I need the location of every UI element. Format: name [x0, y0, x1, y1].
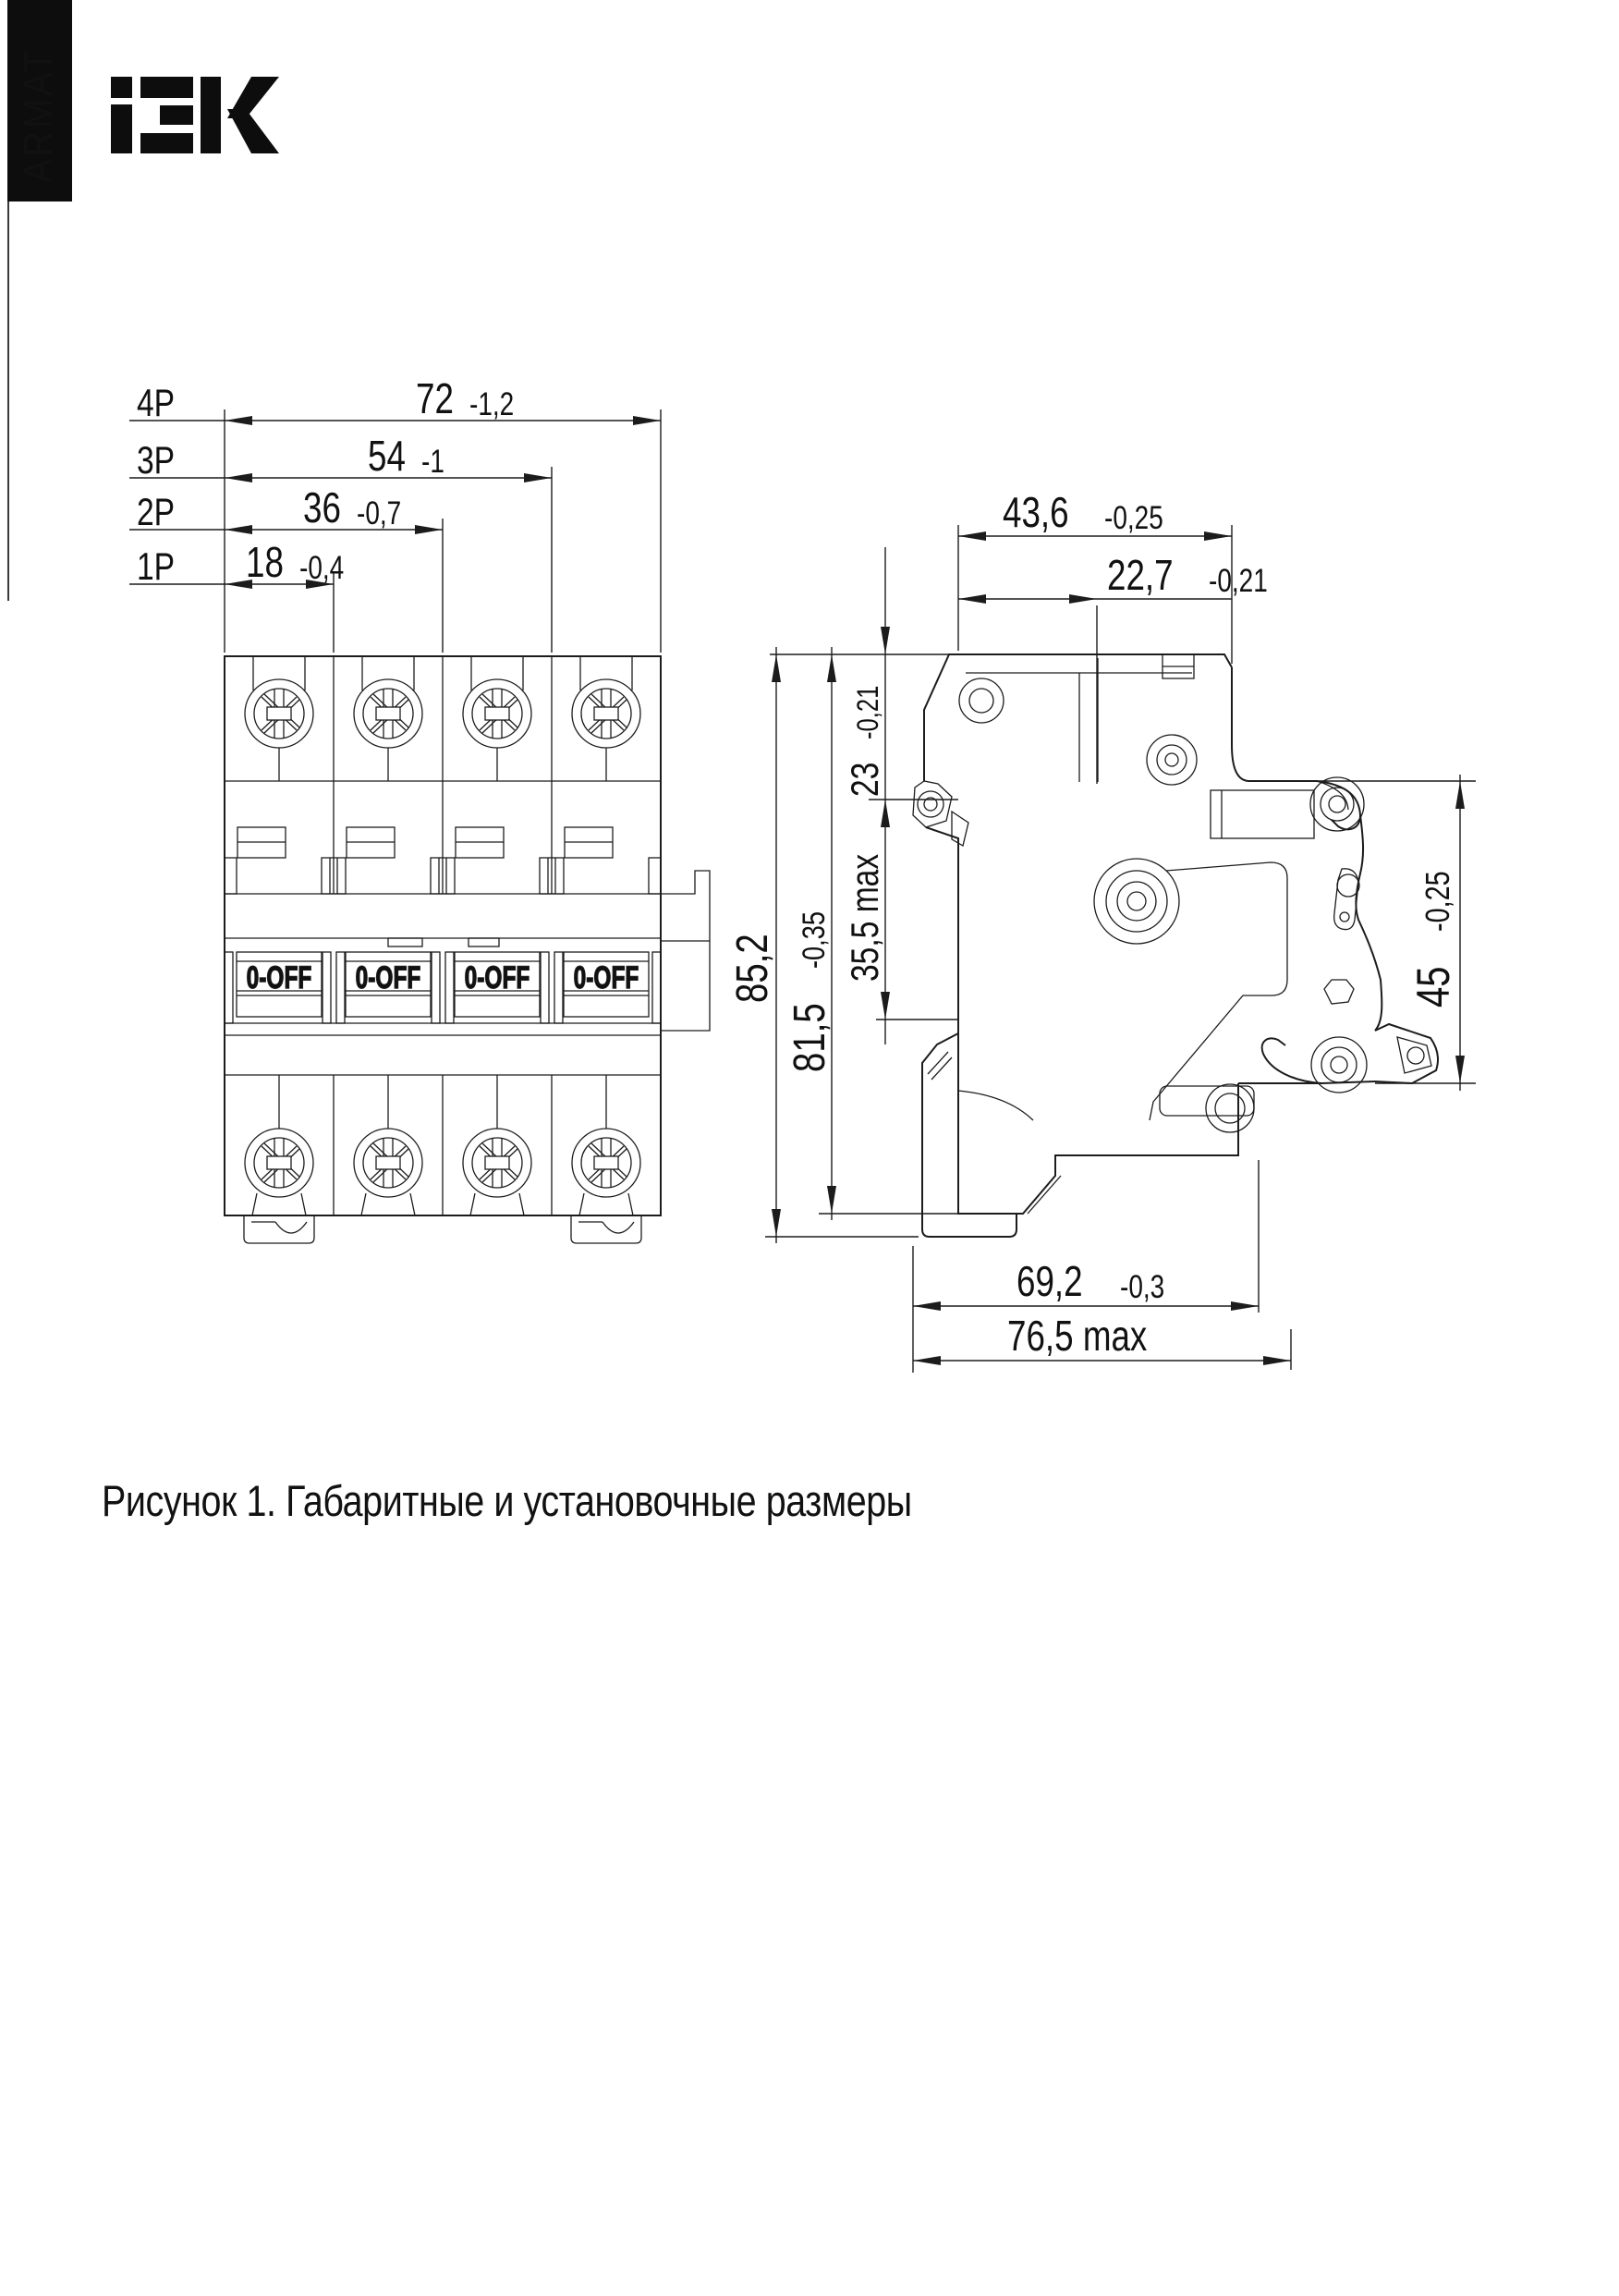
dim-depth-body-tolerance: -0,3 [1120, 1268, 1164, 1305]
handle-label: 0-OFF [356, 960, 421, 995]
dim-width-total-tolerance: -0,25 [1104, 499, 1163, 536]
dim-2p-value: 36 [303, 483, 341, 531]
dim-depth-body-value: 69,2 [1016, 1257, 1083, 1305]
dim-width-step-value: 22,7 [1107, 551, 1174, 599]
datasheet-page: ARMAT [0, 0, 1619, 2296]
front-view: 0-OFF 0-OFF 0-OFF 0-OFF [225, 656, 710, 1243]
brand-strip: ARMAT [7, 0, 72, 202]
handle-label: 0-OFF [465, 960, 530, 995]
side-view [913, 654, 1438, 1237]
pole-label-3p: 3P [137, 440, 175, 482]
dim-height-mid-value: 35,5 max [845, 854, 887, 982]
pole-label-4p: 4P [137, 383, 175, 425]
dim-height-total-value: 85,2 [728, 934, 777, 1003]
rivets [959, 678, 1367, 1132]
dim-height-top-tolerance: -0,21 [852, 686, 884, 739]
dim-width-step-tolerance: -0,21 [1209, 562, 1268, 599]
dim-3p-tolerance: -1 [421, 443, 444, 480]
din-clip [571, 1215, 641, 1243]
dim-2p-tolerance: -0,7 [357, 495, 401, 531]
pole-label-2p: 2P [137, 492, 175, 534]
din-clip [244, 1215, 314, 1243]
dim-depth-max-value: 76,5 max [1007, 1312, 1147, 1360]
iek-logo [111, 77, 279, 153]
dim-height-body-value: 81,5 [785, 1003, 834, 1072]
front-view-dimensions: 4P 72 -1,2 3P 54 -1 2P 36 -0,7 1P 18 -0,… [129, 374, 661, 653]
handle-label: 0-OFF [574, 960, 639, 995]
dim-height-top-value: 23 [845, 763, 887, 797]
dim-width-total-value: 43,6 [1003, 488, 1069, 536]
dim-height-front-value: 45 [1407, 967, 1459, 1008]
figure-caption: Рисунок 1. Габаритные и установочные раз… [102, 1478, 912, 1526]
dim-height-body-tolerance: -0,35 [796, 911, 832, 969]
dim-1p-value: 18 [246, 538, 284, 586]
pole-label-1p: 1P [137, 546, 175, 589]
technical-drawing-canvas: ARMAT [0, 0, 1619, 2296]
dim-4p-value: 72 [416, 374, 454, 422]
dim-1p-tolerance: -0,4 [299, 549, 344, 586]
brand-strip-label: ARMAT [15, 48, 61, 183]
dim-height-front-tolerance: -0,25 [1418, 871, 1456, 932]
dim-4p-tolerance: -1,2 [469, 385, 514, 422]
handle-label: 0-OFF [247, 960, 312, 995]
dim-3p-value: 54 [368, 432, 406, 480]
